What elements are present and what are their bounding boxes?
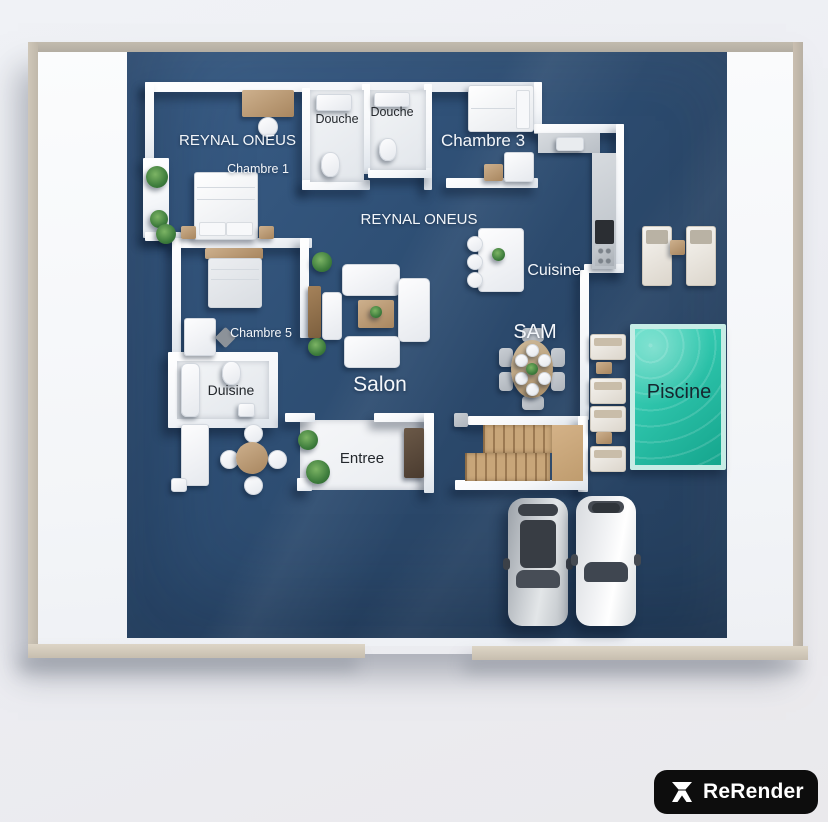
- nightstand-left: [181, 226, 196, 239]
- wall-left-upper: [145, 82, 154, 166]
- lounger-pad: [594, 338, 622, 346]
- patio-stool: [171, 478, 187, 492]
- sam-chair-right1: [551, 348, 565, 367]
- wall-kitchen-top: [534, 124, 624, 133]
- sun-chair-right: [686, 226, 716, 286]
- douche1-sink: [316, 94, 352, 111]
- pool-side-table-1: [596, 362, 612, 374]
- lounger-pad: [594, 382, 622, 390]
- chambre5-bench: [184, 318, 216, 356]
- sun-chair-table: [670, 240, 685, 255]
- compound-wall-top: [28, 42, 803, 52]
- bed-chambre5: [208, 258, 262, 308]
- label-chambre5: Chambre 5: [230, 326, 292, 340]
- wall-stairs-bottom: [455, 480, 588, 490]
- sam-plate: [526, 344, 539, 357]
- wall-kitchen-right: [616, 124, 624, 270]
- bed-fold: [197, 199, 255, 200]
- island-plant: [492, 248, 505, 261]
- salon-sofa-top: [342, 264, 400, 296]
- salon-door: [308, 286, 321, 338]
- wall-entree-top-left: [285, 413, 315, 422]
- sam-plate: [538, 354, 551, 367]
- stairs-landing: [552, 425, 583, 481]
- label-entree: Entree: [338, 450, 386, 467]
- pool-side-table-2: [596, 432, 612, 444]
- car-white: [576, 496, 636, 626]
- island-stool-1: [467, 236, 483, 252]
- bed-fold: [197, 187, 255, 188]
- stairs-upper-run: [483, 425, 552, 453]
- label-cuisine: Cuisine: [524, 262, 584, 280]
- chambre3-closet: [504, 152, 534, 182]
- pool-lounger-2: [590, 378, 626, 404]
- stairs-newel-block: [454, 413, 468, 427]
- sam-plant: [526, 363, 538, 375]
- coffee-table-plant: [370, 306, 382, 318]
- plant-salon-top: [312, 252, 332, 272]
- wall-stairs-top: [468, 416, 586, 425]
- compound-wall-bottom-right: [472, 646, 808, 660]
- patio-chair-e: [268, 450, 287, 469]
- island-stool-2: [467, 254, 483, 270]
- sun-chair-left: [642, 226, 672, 286]
- wall-entree-right: [424, 413, 434, 493]
- sun-chair-cushion: [646, 230, 668, 244]
- stairs-lower-run: [465, 453, 550, 481]
- wall-left-lower: [172, 238, 181, 360]
- car-sunroof: [520, 520, 556, 568]
- bed-pillow: [199, 222, 226, 236]
- island-stool-3: [467, 272, 483, 288]
- label-duisine: Duisine: [205, 382, 257, 398]
- sam-chair-bottom: [522, 396, 544, 410]
- nightstand-right: [259, 226, 274, 239]
- compound-wall-left: [28, 42, 38, 658]
- bed-pillow: [516, 90, 530, 129]
- car-mirror-left: [503, 558, 510, 570]
- bed-fold: [211, 279, 259, 280]
- label-piscine: Piscine: [640, 381, 718, 404]
- douche2-toilet: [379, 138, 397, 161]
- duisine-sink: [238, 403, 255, 417]
- chambre3-dresser: [484, 164, 503, 181]
- plant-left-1: [146, 166, 168, 188]
- patio-chair-s: [244, 476, 263, 495]
- salon-sofa-bottom: [344, 336, 400, 368]
- label-chambre3: Chambre 3: [425, 131, 541, 151]
- plant-left-3: [156, 224, 176, 244]
- desk: [242, 90, 294, 117]
- patio-table: [236, 442, 268, 474]
- compound-wall-bottom-left: [28, 644, 365, 658]
- bed-chambre1: [194, 172, 258, 240]
- car-rear-window: [518, 504, 558, 516]
- label-sam: SAM: [512, 321, 558, 344]
- lounger-pad: [594, 450, 622, 458]
- watermark-top: REYNAL ONEUS: [160, 132, 315, 149]
- wall-pool-side: [580, 270, 589, 420]
- kitchen-sink: [556, 137, 584, 151]
- patio-bench: [181, 424, 209, 486]
- car-sunroof: [592, 503, 620, 513]
- compound-wall-right: [793, 42, 803, 658]
- rerender-logo-icon: [670, 780, 694, 804]
- rerender-badge: ReRender: [654, 770, 818, 814]
- bed-chambre3: [468, 85, 534, 132]
- label-salon: Salon: [350, 373, 410, 397]
- car-silver: [508, 498, 568, 626]
- salon-chaise: [322, 292, 342, 340]
- sam-plate: [515, 372, 528, 385]
- car-windshield: [584, 562, 628, 582]
- bed-fold: [211, 269, 259, 270]
- plant-salon-bottom: [308, 338, 326, 356]
- entree-console: [404, 428, 424, 478]
- rerender-logo-text: ReRender: [703, 780, 804, 804]
- sam-plate: [538, 372, 551, 385]
- label-douche-left: Douche: [310, 112, 364, 126]
- floor-plan-scene: REYNAL ONEUS Chambre 1 Douche Douche Cha…: [0, 0, 828, 822]
- bed-fold: [471, 108, 515, 109]
- watermark-mid: REYNAL ONEUS: [340, 211, 498, 228]
- kitchen-stove: [595, 220, 614, 244]
- sun-chair-cushion: [690, 230, 712, 244]
- lounger-pad: [594, 410, 622, 418]
- car-mirror-left: [571, 554, 578, 566]
- plant-entree-1: [298, 430, 318, 450]
- duisine-bathtub: [181, 363, 200, 417]
- car-windshield: [516, 570, 560, 588]
- patio-chair-n: [244, 424, 263, 443]
- label-chambre1: Chambre 1: [200, 162, 316, 176]
- sam-plate: [526, 383, 539, 396]
- car-mirror-right: [634, 554, 641, 566]
- bed-pillow: [226, 222, 253, 236]
- pool-lounger-1: [590, 334, 626, 360]
- plant-entree-2: [306, 460, 330, 484]
- kitchen-burners: [595, 246, 614, 266]
- salon-sofa-right: [398, 278, 430, 342]
- label-douche-right: Douche: [366, 105, 418, 119]
- pool-lounger-3: [590, 406, 626, 432]
- sam-chair-right2: [551, 372, 565, 391]
- pool-lounger-4: [590, 446, 626, 472]
- douche1-toilet: [321, 152, 340, 177]
